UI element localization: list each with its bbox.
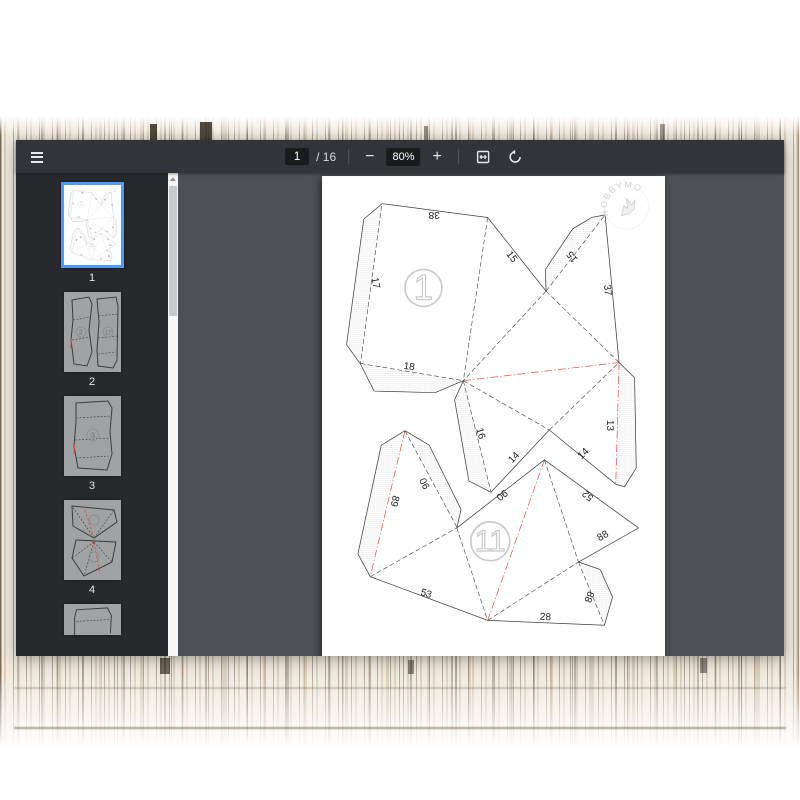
thumbnail-sidebar: 111381515371718161414135290899053288888H… [16, 173, 168, 656]
scrollbar-up-arrow-icon[interactable] [170, 177, 176, 181]
svg-text:13: 13 [110, 226, 112, 228]
wood-knot [700, 658, 707, 673]
svg-text:17: 17 [71, 203, 73, 205]
thumbnail-sketch: 2 17 [64, 292, 121, 372]
rotate-counterclockwise-icon [507, 149, 523, 165]
thumbnail-page-1-preview: 111381515371718161414135290899053288888H… [61, 182, 124, 268]
svg-text:1: 1 [414, 268, 433, 307]
svg-text:14: 14 [576, 446, 592, 462]
thumbnail-page-1[interactable]: 111381515371718161414135290899053288888H… [16, 182, 168, 284]
thumbnail-page-3[interactable]: 3 3 [16, 396, 168, 492]
svg-text:14: 14 [506, 450, 522, 466]
page-number-input[interactable] [285, 148, 309, 165]
fit-page-button[interactable] [471, 147, 495, 167]
wood-knot [408, 660, 414, 674]
thumbnail-page-4-preview [64, 500, 121, 580]
wood-plank-line [14, 727, 786, 729]
thumbnail-page-3-preview: 3 [64, 396, 121, 476]
thumbnail-sketch [64, 604, 121, 635]
svg-text:37: 37 [601, 284, 613, 297]
document-area: 111381515371718161414135290899053288888H… [178, 173, 784, 656]
page-count-label: / 16 [316, 150, 336, 164]
thumbnail-page-5[interactable] [16, 604, 168, 635]
svg-text:HOBBYMO: HOBBYMO [589, 176, 649, 220]
wood-knot [160, 658, 170, 674]
thumbnail-page-5-preview [64, 604, 121, 635]
wood-plank-line [14, 687, 786, 689]
thumbnail-page-4[interactable]: 4 [16, 500, 168, 596]
origami-bird-icon [615, 195, 639, 217]
thumbnail-label: 2 [89, 376, 95, 388]
thumbnail-label: 4 [89, 584, 95, 596]
fit-page-icon [475, 149, 491, 165]
svg-text:18: 18 [77, 216, 79, 218]
svg-text:89: 89 [387, 494, 400, 508]
svg-text:17: 17 [369, 277, 382, 290]
menu-button[interactable] [25, 145, 49, 169]
svg-text:1: 1 [79, 201, 82, 207]
svg-text:38: 38 [81, 191, 83, 193]
pdf-toolbar: / 16 − 80% + [16, 140, 784, 173]
toolbar-divider [458, 149, 459, 164]
wood-knot [424, 126, 428, 141]
svg-text:88: 88 [109, 244, 112, 247]
thumb3-part-number: 3 [91, 433, 95, 440]
thumbnail-label: 3 [89, 480, 95, 492]
pdf-page-1: 111381515371718161414135290899053288888H… [322, 176, 665, 656]
rotate-button[interactable] [503, 147, 527, 167]
svg-text:28: 28 [540, 612, 552, 624]
svg-text:52: 52 [580, 487, 596, 503]
svg-text:28: 28 [100, 258, 102, 260]
svg-text:14: 14 [106, 231, 109, 234]
svg-text:HOBBYMO: HOBBYMO [108, 185, 118, 193]
svg-text:38: 38 [428, 209, 440, 220]
thumbnail-label: 1 [89, 272, 95, 284]
svg-text:14: 14 [94, 231, 97, 234]
zoom-out-button[interactable]: − [361, 147, 378, 167]
svg-text:15: 15 [94, 198, 97, 201]
thumbnail-page-2-preview: 2 17 [64, 292, 121, 372]
toolbar-divider [348, 149, 349, 164]
svg-text:52: 52 [106, 238, 109, 241]
thumbnail-sketch [64, 500, 121, 580]
svg-text:11: 11 [475, 525, 506, 558]
thumb2-part-number: 2 [79, 330, 83, 337]
toolbar-controls: / 16 − 80% + [285, 140, 527, 173]
wood-knot [200, 122, 212, 142]
zoom-in-button[interactable]: + [429, 147, 446, 167]
thumbnail-sketch: 111381515371718161414135290899053288888H… [64, 185, 121, 265]
zoom-level-display: 80% [386, 148, 420, 166]
wood-knot [660, 124, 665, 141]
thumbnail-sketch: 3 [64, 396, 121, 476]
svg-text:37: 37 [110, 204, 112, 206]
origami-bird-icon [112, 189, 116, 193]
thumb2-part-number: 17 [104, 331, 111, 337]
pdf-viewer-window: / 16 − 80% + [16, 140, 784, 656]
svg-text:15: 15 [504, 249, 520, 265]
viewer-body: 111381515371718161414135290899053288888H… [16, 173, 784, 656]
papercraft-pattern: 111381515371718161414135290899053288888H… [322, 176, 665, 647]
sidebar-scrollbar-thumb[interactable] [169, 186, 177, 316]
svg-text:13: 13 [604, 420, 615, 432]
sidebar-scrollbar[interactable] [168, 173, 178, 656]
hamburger-icon [31, 152, 43, 163]
thumbnail-page-2[interactable]: 2 17 2 [16, 292, 168, 388]
svg-text:88: 88 [596, 529, 612, 544]
svg-text:18: 18 [403, 361, 416, 374]
